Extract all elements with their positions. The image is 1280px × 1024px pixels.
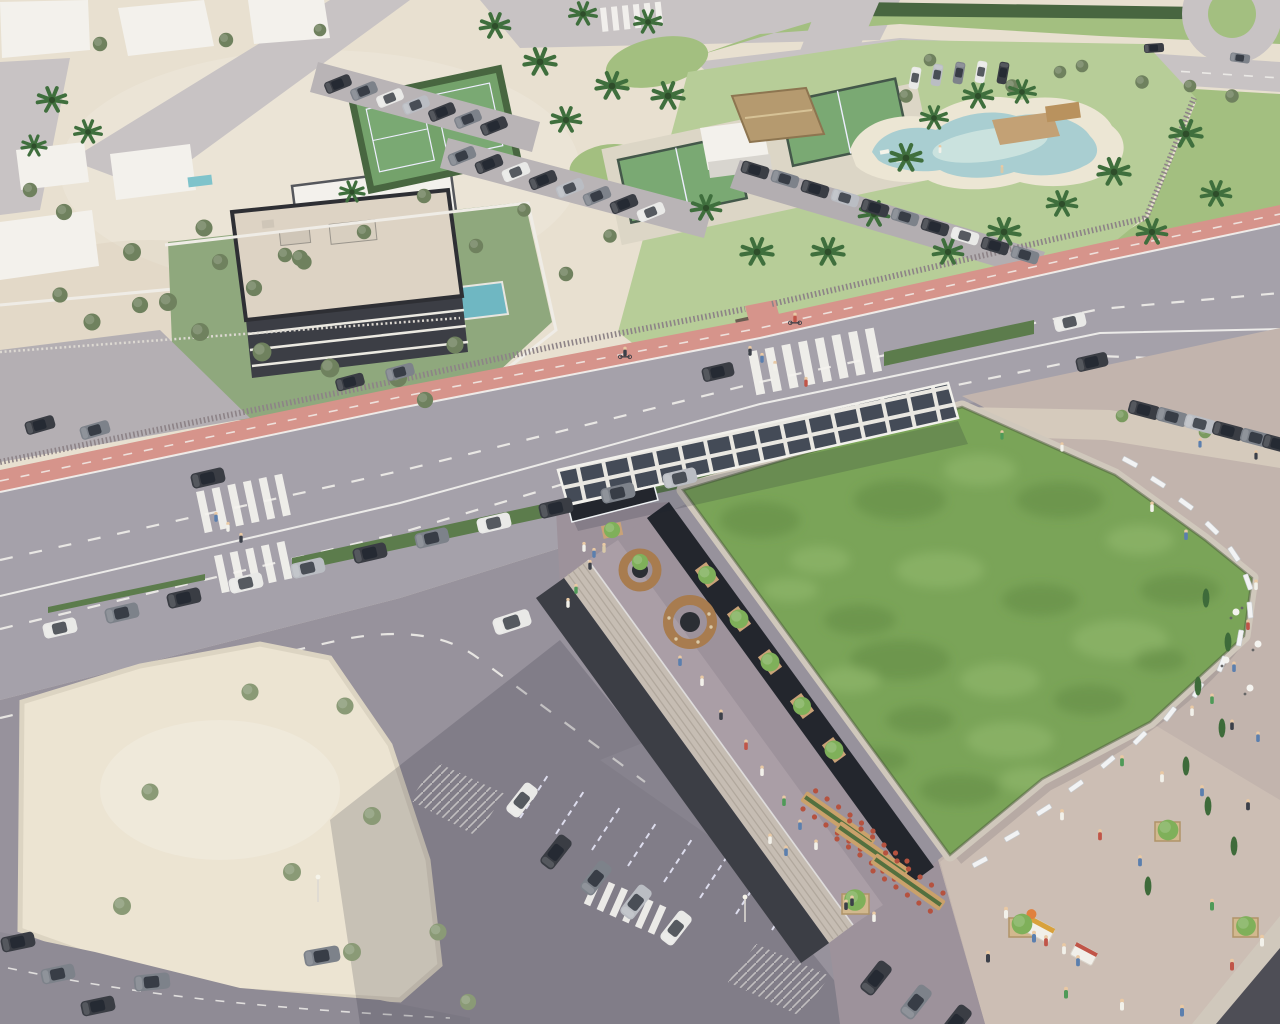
pedestrian <box>1060 442 1063 451</box>
pedestrian <box>700 676 704 687</box>
pedestrian <box>760 766 764 777</box>
tree <box>517 203 531 217</box>
tree <box>446 336 463 353</box>
cypress-tree <box>1205 797 1212 816</box>
villa <box>118 0 214 56</box>
terrace-tree <box>730 610 749 629</box>
terrace-tree <box>632 554 648 570</box>
pedestrian <box>1032 931 1036 943</box>
pedestrian <box>1160 771 1164 782</box>
pedestrian <box>678 656 682 667</box>
pedestrian <box>1230 959 1234 971</box>
tree <box>924 54 937 67</box>
pedestrian <box>798 820 802 831</box>
pedestrian <box>784 846 788 857</box>
pedestrian <box>1210 899 1214 911</box>
tree <box>132 297 148 313</box>
pedestrian <box>986 951 990 963</box>
pedestrian <box>226 522 229 532</box>
pedestrian <box>850 896 854 907</box>
pedestrian <box>744 740 748 751</box>
pedestrian <box>1120 999 1124 1011</box>
terrace-tree <box>793 697 811 715</box>
terrace-tree <box>1012 914 1033 935</box>
pedestrian <box>1254 580 1258 591</box>
pedestrian <box>1076 955 1080 966</box>
tree <box>141 783 158 800</box>
pedestrian <box>1004 907 1008 919</box>
pedestrian <box>760 353 763 363</box>
pedestrian <box>1001 165 1004 173</box>
tree <box>363 807 381 825</box>
terrace-tree <box>604 522 620 538</box>
pedestrian <box>1198 438 1201 447</box>
cypress-tree <box>1219 719 1226 738</box>
pedestrian <box>1260 935 1264 947</box>
tree <box>195 219 212 236</box>
tree <box>159 293 177 311</box>
pedestrian <box>214 512 217 522</box>
tree <box>113 897 131 915</box>
pedestrian <box>1060 809 1064 820</box>
pedestrian <box>1120 755 1124 766</box>
tree <box>212 254 228 270</box>
tree <box>1116 410 1129 423</box>
pedestrian <box>566 598 569 608</box>
pedestrian <box>719 710 723 721</box>
pedestrian <box>814 840 818 851</box>
tree <box>559 267 573 281</box>
tree <box>343 943 361 961</box>
cypress-tree <box>1225 633 1232 652</box>
pedestrian <box>588 560 591 570</box>
cypress-tree <box>1231 837 1238 856</box>
aerial-render-svg: Aerial architectural rendering — coastal… <box>0 0 1280 1024</box>
tree <box>336 697 353 714</box>
pedestrian <box>1246 799 1250 810</box>
pedestrian <box>574 584 577 594</box>
pedestrian <box>1098 829 1102 840</box>
pedestrian <box>1062 943 1066 954</box>
tree <box>1135 75 1149 89</box>
tree <box>292 250 308 266</box>
pedestrian <box>872 912 876 923</box>
pedestrian <box>602 543 605 553</box>
pedestrian <box>768 834 772 845</box>
tree <box>52 287 67 302</box>
tree <box>56 204 72 220</box>
tree <box>93 37 107 51</box>
villa <box>110 144 196 200</box>
tree <box>417 392 433 408</box>
pedestrian <box>1190 706 1194 717</box>
tree <box>283 863 301 881</box>
pedestrian <box>1000 430 1003 439</box>
villa <box>248 0 330 44</box>
terrace-tree <box>698 566 716 584</box>
pedestrian <box>1064 987 1068 999</box>
tree <box>23 183 37 197</box>
tree <box>83 313 100 330</box>
tree <box>253 343 272 362</box>
tree <box>241 683 258 700</box>
tree <box>1054 66 1067 79</box>
pedestrian <box>239 533 242 543</box>
bench <box>1247 602 1253 618</box>
tree <box>469 239 483 253</box>
terrace-tree <box>761 653 780 672</box>
tree <box>417 189 431 203</box>
tree <box>1184 80 1197 93</box>
rooftop-unit <box>262 219 275 228</box>
tree <box>278 248 292 262</box>
pedestrian <box>844 900 848 911</box>
pedestrian <box>1246 620 1250 631</box>
tree <box>321 359 340 378</box>
pedestrian <box>1256 732 1260 743</box>
pedestrian <box>748 346 751 356</box>
tree <box>191 323 209 341</box>
cypress-tree <box>1203 589 1210 608</box>
pedestrian <box>1210 694 1214 705</box>
terrace-tree <box>825 741 844 760</box>
pedestrian <box>1150 502 1154 513</box>
tree <box>357 225 371 239</box>
aerial-render: Aerial architectural rendering — coastal… <box>0 0 1280 1024</box>
cypress-tree <box>1183 757 1190 776</box>
plaza-highlight <box>100 720 340 860</box>
pedestrian <box>1180 1005 1184 1017</box>
pedestrian <box>1230 720 1234 731</box>
villa <box>0 0 90 58</box>
pedestrian <box>1138 855 1142 866</box>
villa <box>16 142 89 190</box>
pedestrian <box>1232 662 1236 673</box>
tree <box>460 994 476 1010</box>
cypress-tree <box>1145 877 1152 896</box>
tree <box>899 89 913 103</box>
terrace-tree <box>1158 820 1179 841</box>
tree <box>246 280 262 296</box>
tree <box>219 33 233 47</box>
terrace-tree <box>1236 916 1256 936</box>
pedestrian <box>1254 450 1257 459</box>
pedestrian <box>1200 785 1204 796</box>
tree <box>603 229 617 243</box>
tree <box>314 24 327 37</box>
pedestrian <box>773 361 776 371</box>
tree <box>429 923 446 940</box>
apartment-roof <box>232 190 462 320</box>
pedestrian <box>939 145 942 153</box>
pedestrian <box>782 796 786 807</box>
pedestrian <box>1184 530 1188 541</box>
pedestrian <box>582 542 585 552</box>
tree <box>1076 60 1089 73</box>
tree <box>123 243 141 261</box>
cypress-tree <box>1195 677 1202 696</box>
pedestrian <box>804 377 807 387</box>
tree <box>1225 89 1239 103</box>
pedestrian <box>1044 935 1048 946</box>
pedestrian <box>592 548 595 558</box>
car <box>1144 43 1165 53</box>
